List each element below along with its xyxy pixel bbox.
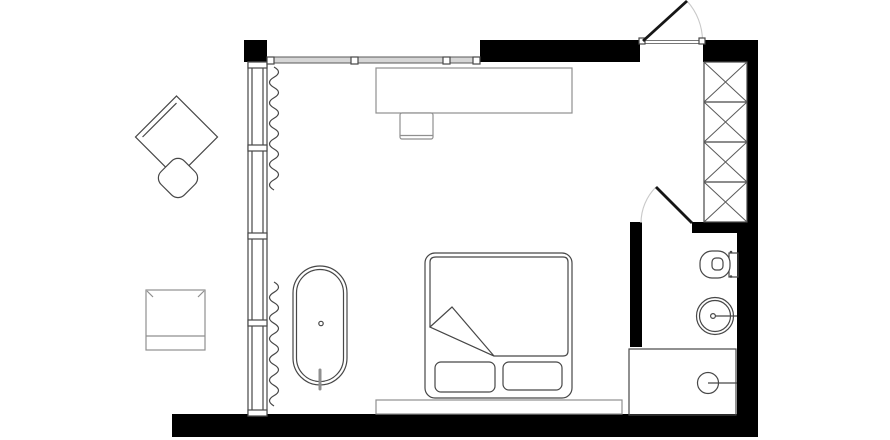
window-mullion [248,320,267,326]
wall-bathroom-top [692,222,747,233]
pillow-left [435,362,495,392]
wall-bathroom-partition [630,222,642,347]
transom-post [267,57,274,64]
transom-post [443,57,450,64]
wardrobe[interactable] [704,62,747,222]
toilet-bowl[interactable] [700,251,730,278]
side-table-top[interactable] [146,290,205,350]
toilet-hinge [730,251,733,254]
toilet-hinge [730,275,733,278]
transom-post [473,57,480,64]
window-mullion [248,410,267,416]
entry-door-jamb [699,38,705,44]
window-mullion [248,62,267,68]
wall-top-right [703,40,758,62]
desk[interactable] [376,68,572,113]
wall-bottom [172,414,758,437]
wall-right-lower [737,233,758,437]
bathtub[interactable] [293,266,347,389]
transom-post [351,57,358,64]
pillow-right [503,362,562,390]
side-table[interactable] [146,290,205,350]
bed-platform [376,400,622,414]
wall-top [480,40,640,62]
window-mullion [248,145,267,151]
wall-corner-block [244,40,267,62]
sink-drain [711,314,716,319]
floor-plan-canvas [0,0,890,440]
desk-chair[interactable] [400,113,433,139]
wall-right-upper [747,62,758,233]
transom-window [267,57,480,64]
window-mullion [248,233,267,239]
